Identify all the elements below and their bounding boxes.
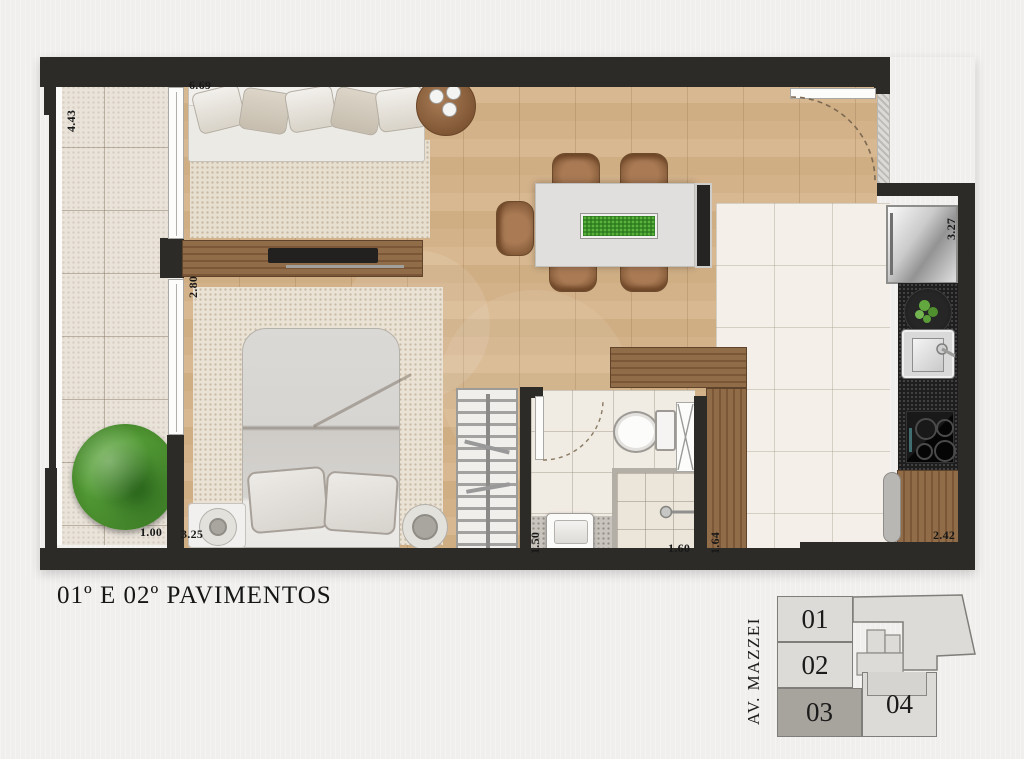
dim-bathroom-width: 1.50 [528, 532, 543, 554]
dim-bedroom-front: 3.25 [181, 527, 203, 542]
page-title: 01º E 02º PAVIMENTOS [57, 582, 332, 610]
keyplan-unit-04: 04 [862, 672, 937, 737]
keyplan-unit-02: 02 [777, 642, 853, 688]
keyplan-unit-01: 01 [777, 596, 853, 642]
entry-door-swing [791, 97, 875, 181]
bath-door-swing [543, 400, 603, 460]
dim-bathroom-length: 1.60 [668, 541, 690, 556]
dim-service-side: 1.64 [708, 532, 723, 554]
unit-label: 01 [802, 604, 829, 635]
keyplan: 01 02 03 04 AV. MAZZEI [738, 583, 982, 749]
dim-balcony-width: 1.00 [140, 525, 162, 540]
shower-head-icon [661, 507, 672, 518]
unit-label: 03 [806, 697, 833, 728]
unit-label: 04 [886, 689, 913, 720]
unit-label: 02 [802, 650, 829, 681]
dim-kitchen-side: 3.27 [944, 218, 959, 240]
dim-living-front: 6.69 [189, 78, 211, 93]
floor-plan-page: 4.43 6.69 2.80 3.25 1.00 1.50 1.60 1.64 … [0, 0, 1024, 759]
dim-bedroom-side: 2.80 [186, 276, 201, 298]
dim-kitchen-front: 2.42 [933, 528, 955, 543]
keyplan-unit-03: 03 [777, 688, 862, 737]
street-label: AV. MAZZEI [744, 617, 764, 725]
dim-balcony-length: 4.43 [64, 110, 79, 132]
